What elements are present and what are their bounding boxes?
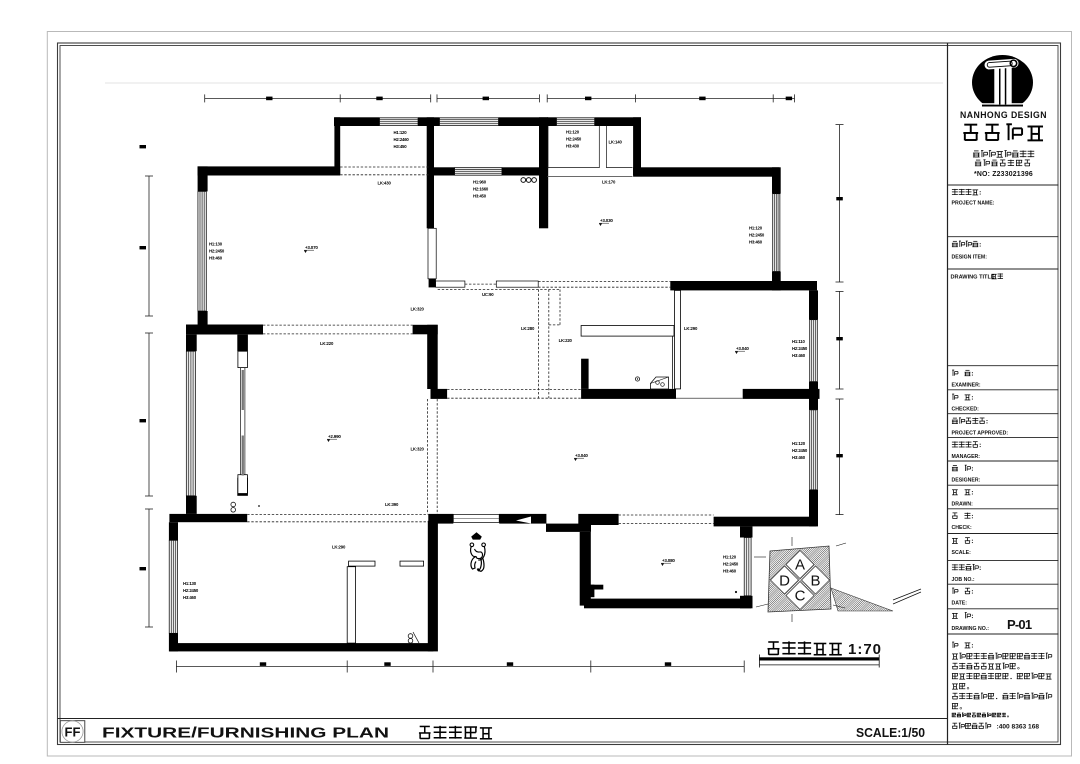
svg-text:H3:460: H3:460: [209, 256, 223, 261]
svg-text:DESIGNER:: DESIGNER:: [952, 478, 981, 484]
svg-text:+3.070: +3.070: [305, 245, 318, 250]
svg-text:EXAMINER:: EXAMINER:: [952, 383, 981, 389]
svg-text:H3:450: H3:450: [394, 144, 408, 149]
svg-text:H2:1660: H2:1660: [473, 187, 489, 192]
svg-text:H3:460: H3:460: [792, 353, 806, 358]
svg-text:H1:120: H1:120: [749, 226, 763, 231]
svg-text:H3:460: H3:460: [749, 240, 763, 245]
svg-text:SCALE:1/50: SCALE:1/50: [856, 726, 925, 740]
svg-text:NANHONG DESIGN: NANHONG DESIGN: [960, 110, 1047, 121]
svg-text:H3:460: H3:460: [723, 569, 737, 574]
svg-text:H2:2450: H2:2450: [749, 233, 765, 238]
svg-text:FF: FF: [65, 725, 81, 740]
svg-text:UC:90: UC:90: [482, 292, 494, 297]
svg-text:H1:130: H1:130: [209, 242, 223, 247]
svg-text:H2:2450: H2:2450: [792, 448, 808, 453]
svg-text:H2:2450: H2:2450: [566, 137, 582, 142]
svg-text:H3:460: H3:460: [792, 455, 806, 460]
svg-text:P-01: P-01: [1007, 617, 1032, 632]
svg-text:H2:2450: H2:2450: [723, 562, 739, 567]
svg-text:LK:290: LK:290: [684, 326, 698, 331]
svg-text:LK:220: LK:220: [559, 338, 573, 343]
svg-text:CHECKED:: CHECKED:: [952, 407, 980, 413]
svg-text:H1:120: H1:120: [792, 441, 806, 446]
svg-text:FIXTURE/FURNISHING PLAN: FIXTURE/FURNISHING PLAN: [102, 726, 389, 742]
svg-text:DRAWN:: DRAWN:: [952, 501, 974, 507]
svg-text:LK:170: LK:170: [602, 180, 616, 185]
svg-text:JOB NO.:: JOB NO.:: [952, 577, 975, 583]
svg-text:DATE:: DATE:: [952, 601, 968, 607]
svg-text:H2:2450: H2:2450: [183, 588, 199, 593]
svg-text:H3:430: H3:430: [566, 144, 580, 149]
svg-text::400 8363 168: :400 8363 168: [997, 723, 1040, 730]
svg-text:SCALE:: SCALE:: [952, 550, 972, 556]
svg-text:DESIGN ITEM:: DESIGN ITEM:: [952, 255, 988, 261]
svg-text:+3.080: +3.080: [662, 558, 675, 563]
svg-text:+2.990: +2.990: [328, 434, 341, 439]
svg-text:LK:320: LK:320: [411, 447, 425, 452]
svg-text:C: C: [795, 588, 806, 605]
svg-text:PROJECT APPROVED:: PROJECT APPROVED:: [952, 430, 1009, 436]
svg-text:H1:110: H1:110: [792, 339, 805, 344]
svg-text:LK:280: LK:280: [521, 326, 535, 331]
svg-text:CHECK:: CHECK:: [952, 525, 972, 531]
svg-text:H2:2450: H2:2450: [209, 249, 225, 254]
svg-text:A: A: [795, 557, 805, 574]
svg-text:B: B: [810, 573, 820, 590]
svg-text:+3.030: +3.030: [600, 218, 613, 223]
svg-text:LK:390: LK:390: [385, 502, 399, 507]
svg-text:D: D: [779, 573, 790, 590]
svg-text:LK:220: LK:220: [320, 341, 334, 346]
svg-text:PROJECT NAME:: PROJECT NAME:: [952, 201, 995, 207]
svg-text:H1:960: H1:960: [473, 180, 487, 185]
svg-text:LK:290: LK:290: [332, 545, 346, 550]
svg-text:H2:2460: H2:2460: [394, 137, 410, 142]
svg-text:*NO: Z233021396: *NO: Z233021396: [974, 171, 1033, 178]
svg-text:LK:430: LK:430: [378, 181, 392, 186]
svg-text:LK:320: LK:320: [411, 307, 425, 312]
svg-text:DRAWING TITLE: DRAWING TITLE: [951, 275, 995, 281]
svg-text:1:70: 1:70: [848, 641, 882, 658]
svg-text:MANAGER:: MANAGER:: [952, 454, 981, 460]
svg-text:DRAWING NO.:: DRAWING NO.:: [952, 626, 990, 632]
svg-text:LK:140: LK:140: [609, 140, 623, 145]
svg-text:H1:120: H1:120: [723, 555, 737, 560]
svg-text:H3:460: H3:460: [183, 595, 197, 600]
svg-text:H1:130: H1:130: [183, 581, 197, 586]
svg-text:H3:450: H3:450: [473, 194, 487, 199]
svg-text:+3.040: +3.040: [575, 453, 588, 458]
svg-text:+3.040: +3.040: [736, 346, 749, 351]
svg-text:H1:120: H1:120: [566, 130, 580, 135]
svg-text:H1:120: H1:120: [394, 130, 408, 135]
svg-text:H2:2450: H2:2450: [792, 346, 808, 351]
